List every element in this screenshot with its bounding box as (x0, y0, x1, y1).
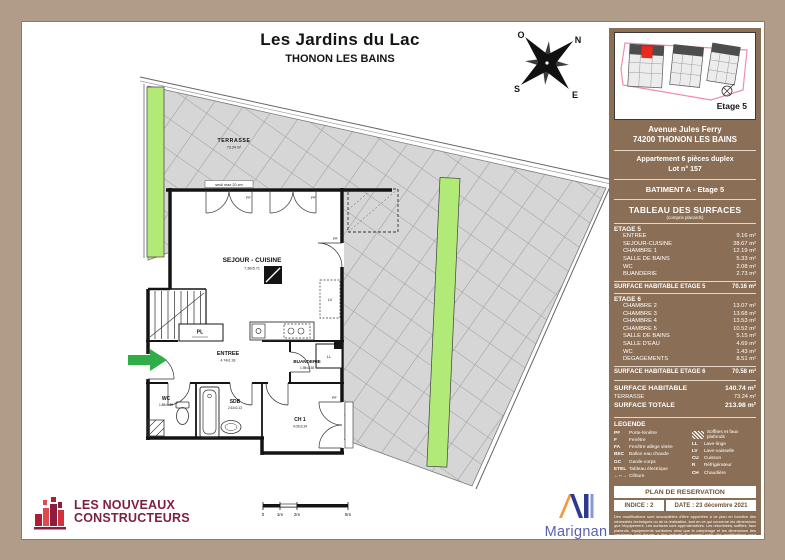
title-block: Les Jardins du Lac THONON LES BAINS (228, 30, 452, 65)
planter-strip-left (147, 87, 164, 257)
totale-label: SURFACE TOTALE (614, 401, 675, 411)
room-area: 4.69 m² (736, 341, 756, 349)
habitable-total-row: SURFACE HABITABLE 140.74 m² (614, 384, 756, 394)
indice-date-row: INDICE : 2 DATE : 23 décembre 2021 (614, 500, 756, 511)
legend-abbr: ←--→ (614, 473, 629, 480)
room-name: SEJOUR-CUISINE (623, 241, 672, 249)
habitable-label: SURFACE HABITABLE (614, 384, 687, 394)
legend-row: BEC Ballon eau chaude (614, 451, 688, 458)
room-area: 13.53 m² (733, 318, 756, 326)
compass-e: E (572, 90, 578, 100)
legend-row: LV Lave-vaisselle (692, 448, 756, 455)
totale-value: 213.98 m² (725, 401, 756, 411)
surface-row: WC 2.08 m² (614, 264, 756, 272)
legend-row: R Réfrigérateur (692, 462, 756, 469)
room-area: 10.52 m² (733, 326, 756, 334)
surface-row: CHAMBRE 4 13.53 m² (614, 318, 756, 326)
room-name: CHAMBRE 3 (623, 311, 657, 319)
legend-row: ←--→ Clôture (614, 473, 688, 480)
legal-fineprint: Des modifications sont susceptibles d'êt… (614, 515, 756, 535)
ll-label: LL (327, 354, 332, 359)
legend-row: CU Cuisson (692, 455, 756, 462)
terrasse-dim: 73.24 m² (227, 146, 242, 150)
room-name: CHAMBRE 5 (623, 326, 657, 334)
lnc-line-1: LES NOUVEAUX (74, 499, 190, 513)
marignan-logo-icon (557, 492, 595, 518)
minimap-building-c (707, 43, 741, 85)
legend-left-column: PF Porte-fenêtre F Fenêtre FA Fenêtre al… (614, 430, 688, 480)
apartment-info: Appartement 6 pièces duplex Lot n° 157 (614, 155, 756, 175)
terrasse-label: TERRASSE (217, 138, 250, 144)
etage6-header: ETAGE 6 (614, 293, 756, 303)
legend-abbr: FA (614, 444, 629, 451)
entree-label: ENTREE (217, 351, 240, 357)
surface-row: CHAMBRE 3 13.68 m² (614, 311, 756, 319)
entree-dim: 4.74x1.93 (221, 359, 236, 363)
legend-abbr: LL (692, 441, 704, 448)
structural-column (264, 266, 282, 284)
surface-totals: SURFACE HABITABLE 140.74 m² TERRASSE 73.… (614, 380, 756, 411)
pf-label-4: PF (332, 396, 338, 400)
minimap-building-b (670, 45, 704, 88)
room-name: DEGAGEMENTS (623, 356, 668, 364)
legend-label: Tableau électrique (629, 466, 668, 473)
lnc-logo-block: LES NOUVEAUX CONSTRUCTEURS (34, 494, 190, 530)
legend-right-rows: LL Lave-linge LV Lave-vaisselle CU Cuiss… (692, 441, 756, 477)
room-name: WC (623, 264, 633, 272)
sdb-dim: 2.61x2.13 (228, 406, 242, 410)
lot-number: Lot n° 157 (614, 165, 756, 175)
scale-1m: 1m (277, 512, 284, 517)
etage6-rows: CHAMBRE 2 13.07 m² CHAMBRE 3 13.68 m² CH… (614, 303, 756, 364)
etage5-total-row: SURFACE HABITABLE ETAGE 5 70.16 m² (614, 281, 756, 290)
etage5-header: ETAGE 5 (614, 223, 756, 233)
compass-s: S (514, 84, 520, 94)
room-name: BUANDERIE (623, 271, 657, 279)
terrasse-label: TERRASSE (614, 394, 644, 402)
project-address: Avenue Jules Ferry 74200 THONON LES BAIN… (614, 125, 756, 146)
room-area: 8.51 m² (736, 356, 756, 364)
etage5-rows: ENTREE 9.16 m² SEJOUR-CUISINE 38.67 m² C… (614, 233, 756, 279)
pf-label-1: PF (246, 196, 252, 200)
indice-box: INDICE : 2 (614, 500, 664, 511)
legend-abbr: PF (614, 430, 629, 437)
project-title: Les Jardins du Lac (228, 30, 452, 50)
room-area: 38.67 m² (733, 241, 756, 249)
legend-abbr: F (614, 437, 629, 444)
legend-soffites-label: Soffites et faux plafonds (707, 430, 756, 441)
minimap-building-a (628, 44, 664, 88)
address-line-1: Avenue Jules Ferry (614, 125, 756, 135)
site-minimap: Etage 5 (614, 32, 756, 120)
legend-label: Garde-corps (629, 459, 656, 466)
room-area: 12.19 m² (733, 248, 756, 256)
threshold-note: seuil max 20 cm (205, 181, 253, 188)
minimap-etage-label: Etage 5 (717, 101, 748, 111)
reservation-banner: PLAN DE RESERVATION (614, 486, 756, 498)
room-area: 2.08 m² (736, 264, 756, 272)
kitchen-counter (250, 322, 314, 340)
room-name: WC (623, 349, 633, 357)
ch1-label: CH 1 (294, 417, 306, 423)
etage6-total-row: SURFACE HABITABLE ETAGE 6 70.58 m² (614, 366, 756, 375)
legend-abbr: R (692, 462, 704, 469)
room-name: CHAMBRE 2 (623, 303, 657, 311)
hatch-swatch-icon (692, 431, 704, 439)
door-threshold (345, 402, 353, 448)
room-area: 5.15 m² (736, 333, 756, 341)
surface-row: CHAMBRE 5 10.52 m² (614, 326, 756, 334)
terrasse-total-row: TERRASSE 73.24 m² (614, 394, 756, 402)
etage6-total-value: 70.58 m² (732, 369, 756, 375)
lv-label: LV (328, 298, 333, 302)
scale-5m: 5m (345, 512, 352, 517)
batiment-label: BATIMENT A - Etage 5 (614, 185, 756, 194)
seuil-label: seuil max 20 cm (215, 183, 242, 187)
room-area: 5.33 m² (736, 256, 756, 264)
etage6-total-label: SURFACE HABITABLE ETAGE 6 (614, 369, 705, 375)
room-area: 13.68 m² (733, 311, 756, 319)
surface-row: SALLE D'EAU 4.69 m² (614, 341, 756, 349)
legend-row: ETEL Tableau électrique (614, 466, 688, 473)
divider (614, 179, 756, 180)
etage5-total-label: SURFACE HABITABLE ETAGE 5 (614, 284, 705, 290)
room-name: SALLE DE BAINS (623, 256, 670, 264)
legend-label: Réfrigérateur (704, 462, 732, 469)
legend-label: Cuisson (704, 455, 721, 462)
legend-label: Lave-vaisselle (704, 448, 734, 455)
surface-row: CHAMBRE 2 13.07 m² (614, 303, 756, 311)
wc-dim: 1.88x1.30 (159, 403, 173, 407)
legend-right-column: Soffites et faux plafonds LL Lave-linge … (692, 430, 756, 480)
room-name: SALLE D'EAU (623, 341, 660, 349)
room-area: 1.43 m² (736, 349, 756, 357)
info-sidebar: Etage 5 Avenue Jules Ferry 74200 THONON … (609, 28, 761, 535)
surface-table-subtitle: (compris placards) (614, 215, 756, 220)
pf-label-3: PF (333, 237, 339, 241)
legend-abbr: BEC (614, 451, 629, 458)
surface-row: ENTREE 9.16 m² (614, 233, 756, 241)
legend-soffites-row: Soffites et faux plafonds (692, 430, 756, 441)
legend-row: PF Porte-fenêtre (614, 430, 688, 437)
etage5-total-value: 70.16 m² (732, 284, 756, 290)
pf-label-2: PF (311, 196, 317, 200)
legend-abbr: GC (614, 459, 629, 466)
legend-row: LL Lave-linge (692, 441, 756, 448)
legend-abbr: LV (692, 448, 704, 455)
pl-label: PL (197, 330, 203, 336)
sejour-label: SEJOUR - CUISINE (223, 257, 283, 264)
legend-label: Chaudière (704, 470, 726, 477)
legend-label: Clôture (629, 473, 644, 480)
room-name: CHAMBRE 4 (623, 318, 657, 326)
buanderie-dim: 1.98x1.38 (300, 366, 314, 370)
room-area: 9.16 m² (736, 233, 756, 241)
terrasse-value: 73.24 m² (734, 394, 756, 402)
room-name: SALLE DE BAINS (623, 333, 670, 341)
scale-bar: 0 1m 2m 5m (262, 502, 352, 517)
compass-o: O (517, 30, 524, 40)
ch1-dim: 4.03x3.34 (293, 425, 307, 429)
sdb-label: SDB (230, 399, 241, 405)
legend-abbr: CH (692, 470, 704, 477)
legend-row: F Fenêtre (614, 437, 688, 444)
totale-total-row: SURFACE TOTALE 213.98 m² (614, 401, 756, 411)
legend-columns: PF Porte-fenêtre F Fenêtre FA Fenêtre al… (614, 430, 756, 480)
apartment-type: Appartement 6 pièces duplex (614, 155, 756, 165)
surface-row: WC 1.43 m² (614, 349, 756, 357)
surface-row: CHAMBRE 1 12.19 m² (614, 248, 756, 256)
room-area: 13.07 m² (733, 303, 756, 311)
legend-title: LEGENDE (614, 417, 756, 428)
lnc-logo-icon (34, 494, 68, 530)
legend-label: Lave-linge (704, 441, 726, 448)
compass-n: N (575, 35, 582, 45)
surface-row: SEJOUR-CUISINE 38.67 m² (614, 241, 756, 249)
room-name: CHAMBRE 1 (623, 248, 657, 256)
minimap-highlighted-unit (641, 46, 653, 59)
legend-row: GC Garde-corps (614, 459, 688, 466)
legend-abbr: CU (692, 455, 704, 462)
lnc-line-2: CONSTRUCTEURS (74, 512, 190, 526)
divider (614, 150, 756, 151)
compass-rose: N O S E (499, 15, 595, 111)
address-line-2: 74200 THONON LES BAINS (614, 135, 756, 145)
legend-row: FA Fenêtre allège vitrée (614, 444, 688, 451)
plan-sheet: { "title": {"line1": "Les Jardins du Lac… (0, 0, 785, 560)
legend-label: Ballon eau chaude (629, 451, 669, 458)
room-area: 2.73 m² (736, 271, 756, 279)
surface-row: DEGAGEMENTS 8.51 m² (614, 356, 756, 364)
apartment-floor (146, 188, 344, 455)
divider (614, 199, 756, 200)
scale-2m: 2m (294, 512, 301, 517)
room-name: ENTREE (623, 233, 647, 241)
legend-abbr: ETEL (614, 466, 629, 473)
legend-row: CH Chaudière (692, 470, 756, 477)
lnc-logo-text: LES NOUVEAUX CONSTRUCTEURS (74, 499, 190, 526)
surface-table-title: TABLEAU DES SURFACES (614, 205, 756, 215)
legend-label: Fenêtre allège vitrée (629, 444, 673, 451)
marignan-logo-block: Marignan (534, 492, 618, 540)
surface-row: SALLE DE BAINS 5.15 m² (614, 333, 756, 341)
project-city: THONON LES BAINS (228, 53, 452, 65)
sejour-dim: 7.36x5.71 (244, 267, 260, 271)
legend-label: Fenêtre (629, 437, 646, 444)
legend-label: Porte-fenêtre (629, 430, 657, 437)
surface-row: SALLE DE BAINS 5.33 m² (614, 256, 756, 264)
habitable-value: 140.74 m² (725, 384, 756, 394)
wc-label: WC (162, 396, 171, 402)
surface-row: BUANDERIE 2.73 m² (614, 271, 756, 279)
buanderie-label: BUANDERIE (293, 359, 320, 364)
marignan-logo-text: Marignan (534, 524, 618, 540)
scale-0: 0 (262, 512, 265, 517)
date-box: DATE : 23 décembre 2021 (666, 500, 756, 511)
